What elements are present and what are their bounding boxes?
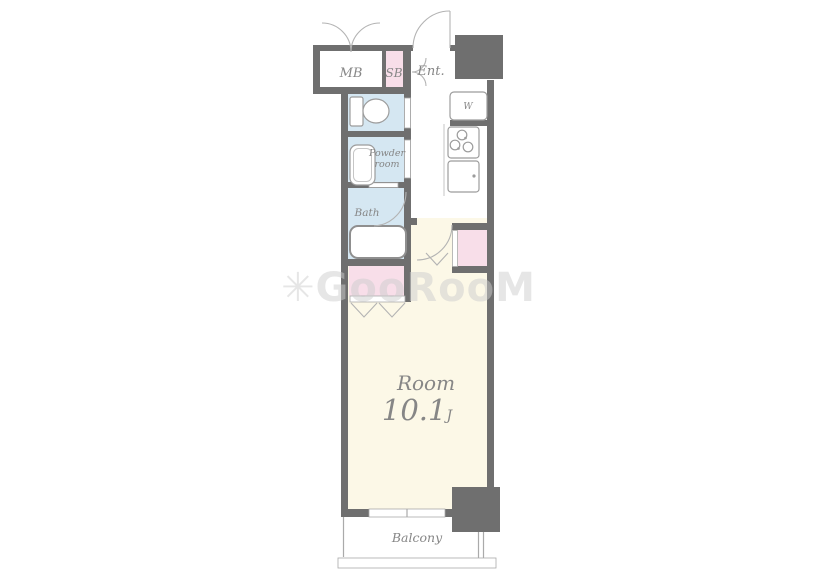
watermark: ✳GooRooM (281, 265, 536, 311)
wall-segment (450, 120, 487, 126)
room-name-label: Room (396, 371, 455, 395)
mb-label: MB (339, 66, 363, 81)
toilet-door (405, 98, 411, 128)
burner-dot (464, 137, 467, 140)
closet-right (458, 230, 487, 266)
burner (463, 142, 473, 152)
powder-room-door (405, 140, 411, 178)
floorplan-drawing: MB SB Ent. W Powder room Bath Room 10.1J… (0, 0, 819, 579)
entrance-label: Ent. (416, 64, 444, 79)
powder-room-label: Powder (368, 148, 407, 159)
floorplan-canvas: MB SB Ent. W Powder room Bath Room 10.1J… (0, 0, 819, 579)
powder-room-label: room (375, 159, 400, 170)
burner-dot (457, 147, 460, 150)
wall-segment (452, 223, 490, 230)
wall-segment (403, 45, 411, 94)
room-size-label: 10.1J (382, 393, 454, 427)
wall-segment (450, 45, 455, 51)
pillar-bottom-right (452, 487, 500, 532)
sb-label: SB (385, 66, 402, 80)
balcony-label: Balcony (391, 530, 443, 545)
toilet-bowl (363, 99, 389, 123)
wall-segment (313, 45, 413, 51)
toilet-tank (350, 97, 363, 126)
balcony-base (338, 558, 496, 568)
wall-segment (313, 87, 411, 94)
bath-label: Bath (354, 207, 380, 219)
bath-door-panel (369, 183, 398, 188)
closet-right-door (453, 231, 458, 267)
wall-segment (404, 218, 417, 225)
wall-segment (313, 45, 320, 94)
wall-segment (348, 131, 404, 137)
faucet-dot (472, 174, 475, 177)
washer-label: W (463, 102, 473, 112)
pillar-top-right (455, 35, 503, 79)
entrance-door-arc (413, 11, 450, 48)
bathtub (350, 226, 406, 258)
